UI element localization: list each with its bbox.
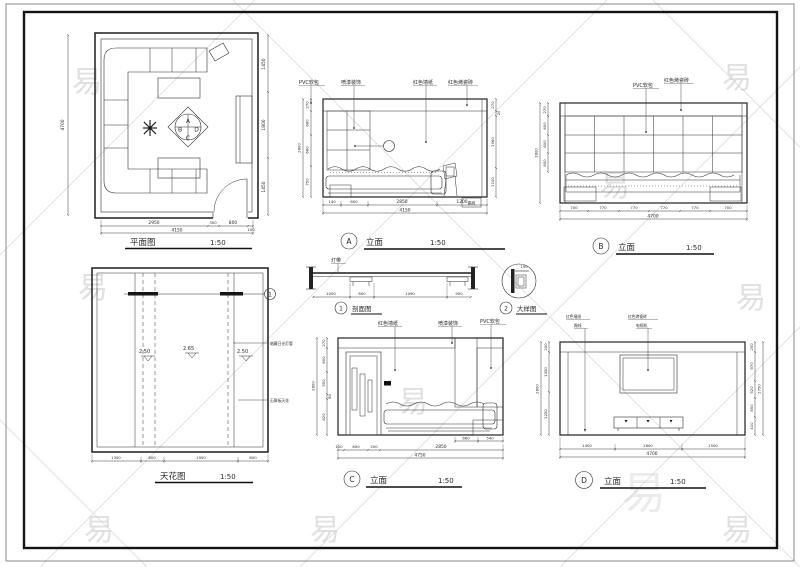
switch <box>384 381 391 386</box>
marker-letter-a: A <box>186 118 191 125</box>
menu-stand <box>443 163 457 196</box>
dim-text: 650 <box>749 404 754 412</box>
dim-text: 600 <box>148 455 156 460</box>
corner-speaker <box>209 43 229 61</box>
dim-text: 1300 <box>111 455 121 460</box>
drawing-scale: 1:50 <box>430 239 446 247</box>
cad-drawing-sheet: 易 易 易 易 易 易 易 易 易 易 A B D C <box>0 0 800 567</box>
marker-letter-c: C <box>186 135 190 142</box>
dim-text: 270 <box>321 339 326 347</box>
dim-text: 2850 <box>435 444 446 450</box>
dim-text: 800 <box>249 455 257 460</box>
drawing-title: 大样图 <box>517 304 537 313</box>
dim-text: 1060 <box>490 137 495 147</box>
dim-text: 270 <box>305 101 310 109</box>
dim-text: 2950 <box>148 220 159 226</box>
dim-text: 750 <box>305 178 310 186</box>
ceiling-plan: 1 2.50 2.65 2.50 暗藏日光灯管 石膏板天花 1300 600 1… <box>92 268 293 483</box>
material-label: PVC软包 <box>299 79 319 86</box>
watermark-glyph: 易 <box>310 513 340 548</box>
dim-text: 1950 <box>196 455 206 460</box>
elevation-marker-diamond: A B D C <box>168 107 208 147</box>
material-label: 红色烤瓷砖 <box>628 314 647 319</box>
marker-letter-d: D <box>194 127 199 134</box>
view-marker: B <box>598 242 603 251</box>
door <box>346 352 381 435</box>
view-marker: C <box>349 475 354 484</box>
level-text: 2.50 <box>237 349 248 355</box>
detail-marker: 2 <box>504 306 508 313</box>
dim-text: 600 <box>350 199 358 204</box>
section-marker: 1 <box>339 306 343 313</box>
level-text: 2.65 <box>183 346 194 352</box>
dim-text: 540 <box>486 436 494 441</box>
material-label: 喷漆装饰 <box>341 79 361 86</box>
material-label: 红色烤瓷砖 <box>664 77 689 84</box>
dim-text: 2800 <box>297 143 302 153</box>
section-cut-marker: 1 <box>268 292 272 299</box>
dim-text: 200 <box>370 444 378 449</box>
dim-text: 2800 <box>534 148 539 158</box>
dim-text: 1450 <box>261 58 267 69</box>
dim-text: 1350 <box>543 367 548 377</box>
material-label: 红色烤瓷砖 <box>448 79 473 86</box>
dim-text: 1090 <box>405 291 415 296</box>
material-label: PVC软包 <box>480 318 500 325</box>
dim-text: 900 <box>455 291 463 296</box>
gypsum-ceiling-label: 石膏板天花 <box>270 398 289 403</box>
dim-text: 300 <box>209 220 217 225</box>
dim-text: 1250 <box>543 409 548 419</box>
tv-cabinet <box>614 417 683 431</box>
dim-text: 2750 <box>757 384 762 394</box>
dim-text: 4150 <box>171 228 182 234</box>
drawing-scale: 1:50 <box>220 473 236 481</box>
dim-text: 770 <box>599 205 607 210</box>
dim-text: 200 <box>543 343 548 351</box>
dim-text: 680 <box>305 146 310 154</box>
dim-text: 410 <box>749 422 754 430</box>
marker-letter-b: B <box>178 127 182 134</box>
dim-text: 660 <box>462 436 470 441</box>
drawing-title: 平面图 <box>130 238 156 248</box>
level-marks: 2.50 2.65 2.50 <box>139 346 253 361</box>
dim-text: 4700 <box>60 119 66 130</box>
watermark-glyph: 易 <box>722 513 752 548</box>
watermark-glyph: 易 <box>736 281 766 316</box>
watermark-glyph: 易 <box>622 468 666 519</box>
dim-text: 770 <box>691 205 699 210</box>
elevation-b: PVC软包 红色烤瓷砖 270 600 600 600 2800 700 770… <box>534 77 748 254</box>
dim-text: 700 <box>570 205 578 210</box>
dim-text: 1500 <box>708 443 718 448</box>
drawing-title: 立面 <box>370 475 388 486</box>
dim-text: 1000 <box>326 291 336 296</box>
dim-text: 2800 <box>535 384 540 394</box>
dim-text: 4150 <box>399 208 410 214</box>
dim-text: 270 <box>542 106 547 114</box>
dim-text: 770 <box>660 205 668 210</box>
tv-panel <box>620 355 677 393</box>
elevation-a: PVC软包 喷漆装饰 红色墙纸 红色烤瓷砖 270 680 680 750 28… <box>297 79 506 249</box>
watermark-glyph: 易 <box>84 513 114 548</box>
dim-text: 970 <box>749 362 754 370</box>
ceiling-section: 灯带 1000 600 1090 900 1 剖面图 <box>306 257 478 314</box>
drawing-title: 立面 <box>618 242 636 253</box>
dim-text: 4700 <box>646 451 657 457</box>
watermark-glyph: 易 <box>600 169 630 204</box>
watermark-glyph: 易 <box>78 271 108 306</box>
dim-text: 150 <box>520 264 528 269</box>
dim-text: 4750 <box>414 453 425 459</box>
dim-text: 1800 <box>643 443 653 448</box>
dim-text: 200 <box>749 343 754 351</box>
drawing-scale: 1:50 <box>210 239 226 247</box>
dim-text: 600 <box>542 140 547 148</box>
drawing-scale: 1:50 <box>670 478 686 486</box>
dim-text: 1800 <box>261 119 267 130</box>
dim-text: 1100 <box>490 177 495 187</box>
hidden-light-label: 暗藏日光灯管 <box>270 341 293 346</box>
watermark-glyph: 易 <box>72 65 102 100</box>
dim-text: 600 <box>358 291 366 296</box>
dim-text: 600 <box>542 159 547 167</box>
dim-text: 100 <box>247 227 255 232</box>
dim-text: 2800 <box>311 381 316 391</box>
dim-text: 770 <box>630 205 638 210</box>
drawing-title: 立面 <box>366 237 384 248</box>
dim-text: 800 <box>352 444 360 449</box>
dim-text: 680 <box>305 119 310 127</box>
material-label: 电视机 <box>636 323 648 328</box>
skirting-note: 踢线 <box>468 201 476 206</box>
material-label: 红色墙纸 <box>566 314 581 319</box>
drawing-title: 剖面图 <box>352 304 372 313</box>
interior-design-cad-drawing: 易 易 易 易 易 易 易 易 易 易 A B D C <box>0 0 800 567</box>
view-marker: D <box>581 476 587 485</box>
level-text: 2.50 <box>139 349 150 355</box>
dim-text: 2850 <box>396 199 407 205</box>
dim-text: 600 <box>542 122 547 130</box>
material-label: 喷漆装饰 <box>438 320 458 327</box>
dim-text: 80 <box>327 394 332 399</box>
dim-text: 600 <box>321 356 326 364</box>
dim-text: 800 <box>229 220 238 226</box>
reference-symbol <box>384 141 395 152</box>
dim-text: 4700 <box>647 214 658 220</box>
drawing-title: 立面 <box>604 476 622 487</box>
watermark-glyph: 易 <box>722 61 752 96</box>
plant-symbol <box>143 120 157 136</box>
drawing-scale: 1:50 <box>686 244 702 252</box>
view-marker: A <box>346 237 352 246</box>
material-label: PVC软包 <box>633 82 653 89</box>
dim-text: 520 <box>749 386 754 394</box>
dim-text: 620 <box>321 413 326 421</box>
material-label: 踢线 <box>574 323 582 328</box>
dim-text: 1450 <box>261 181 267 192</box>
light-strip-label: 灯带 <box>331 257 341 264</box>
dim-text: 140 <box>328 199 336 204</box>
dim-text: 1400 <box>582 443 592 448</box>
material-label: 红色墙纸 <box>413 79 433 86</box>
dim-text: 100 <box>335 444 343 449</box>
drawing-scale: 1:50 <box>438 477 454 485</box>
dim-text: 270 <box>490 101 495 109</box>
dim-text: 20 <box>496 110 501 115</box>
elevation-d: 红色墙纸 踢线 红色烤瓷砖 电视机 200 1350 1250 2800 200… <box>535 314 764 489</box>
material-label: 红色墙纸 <box>378 320 398 327</box>
drawing-title: 天花图 <box>160 471 186 482</box>
dim-text: 700 <box>724 205 732 210</box>
dim-text: 550 <box>321 379 326 387</box>
